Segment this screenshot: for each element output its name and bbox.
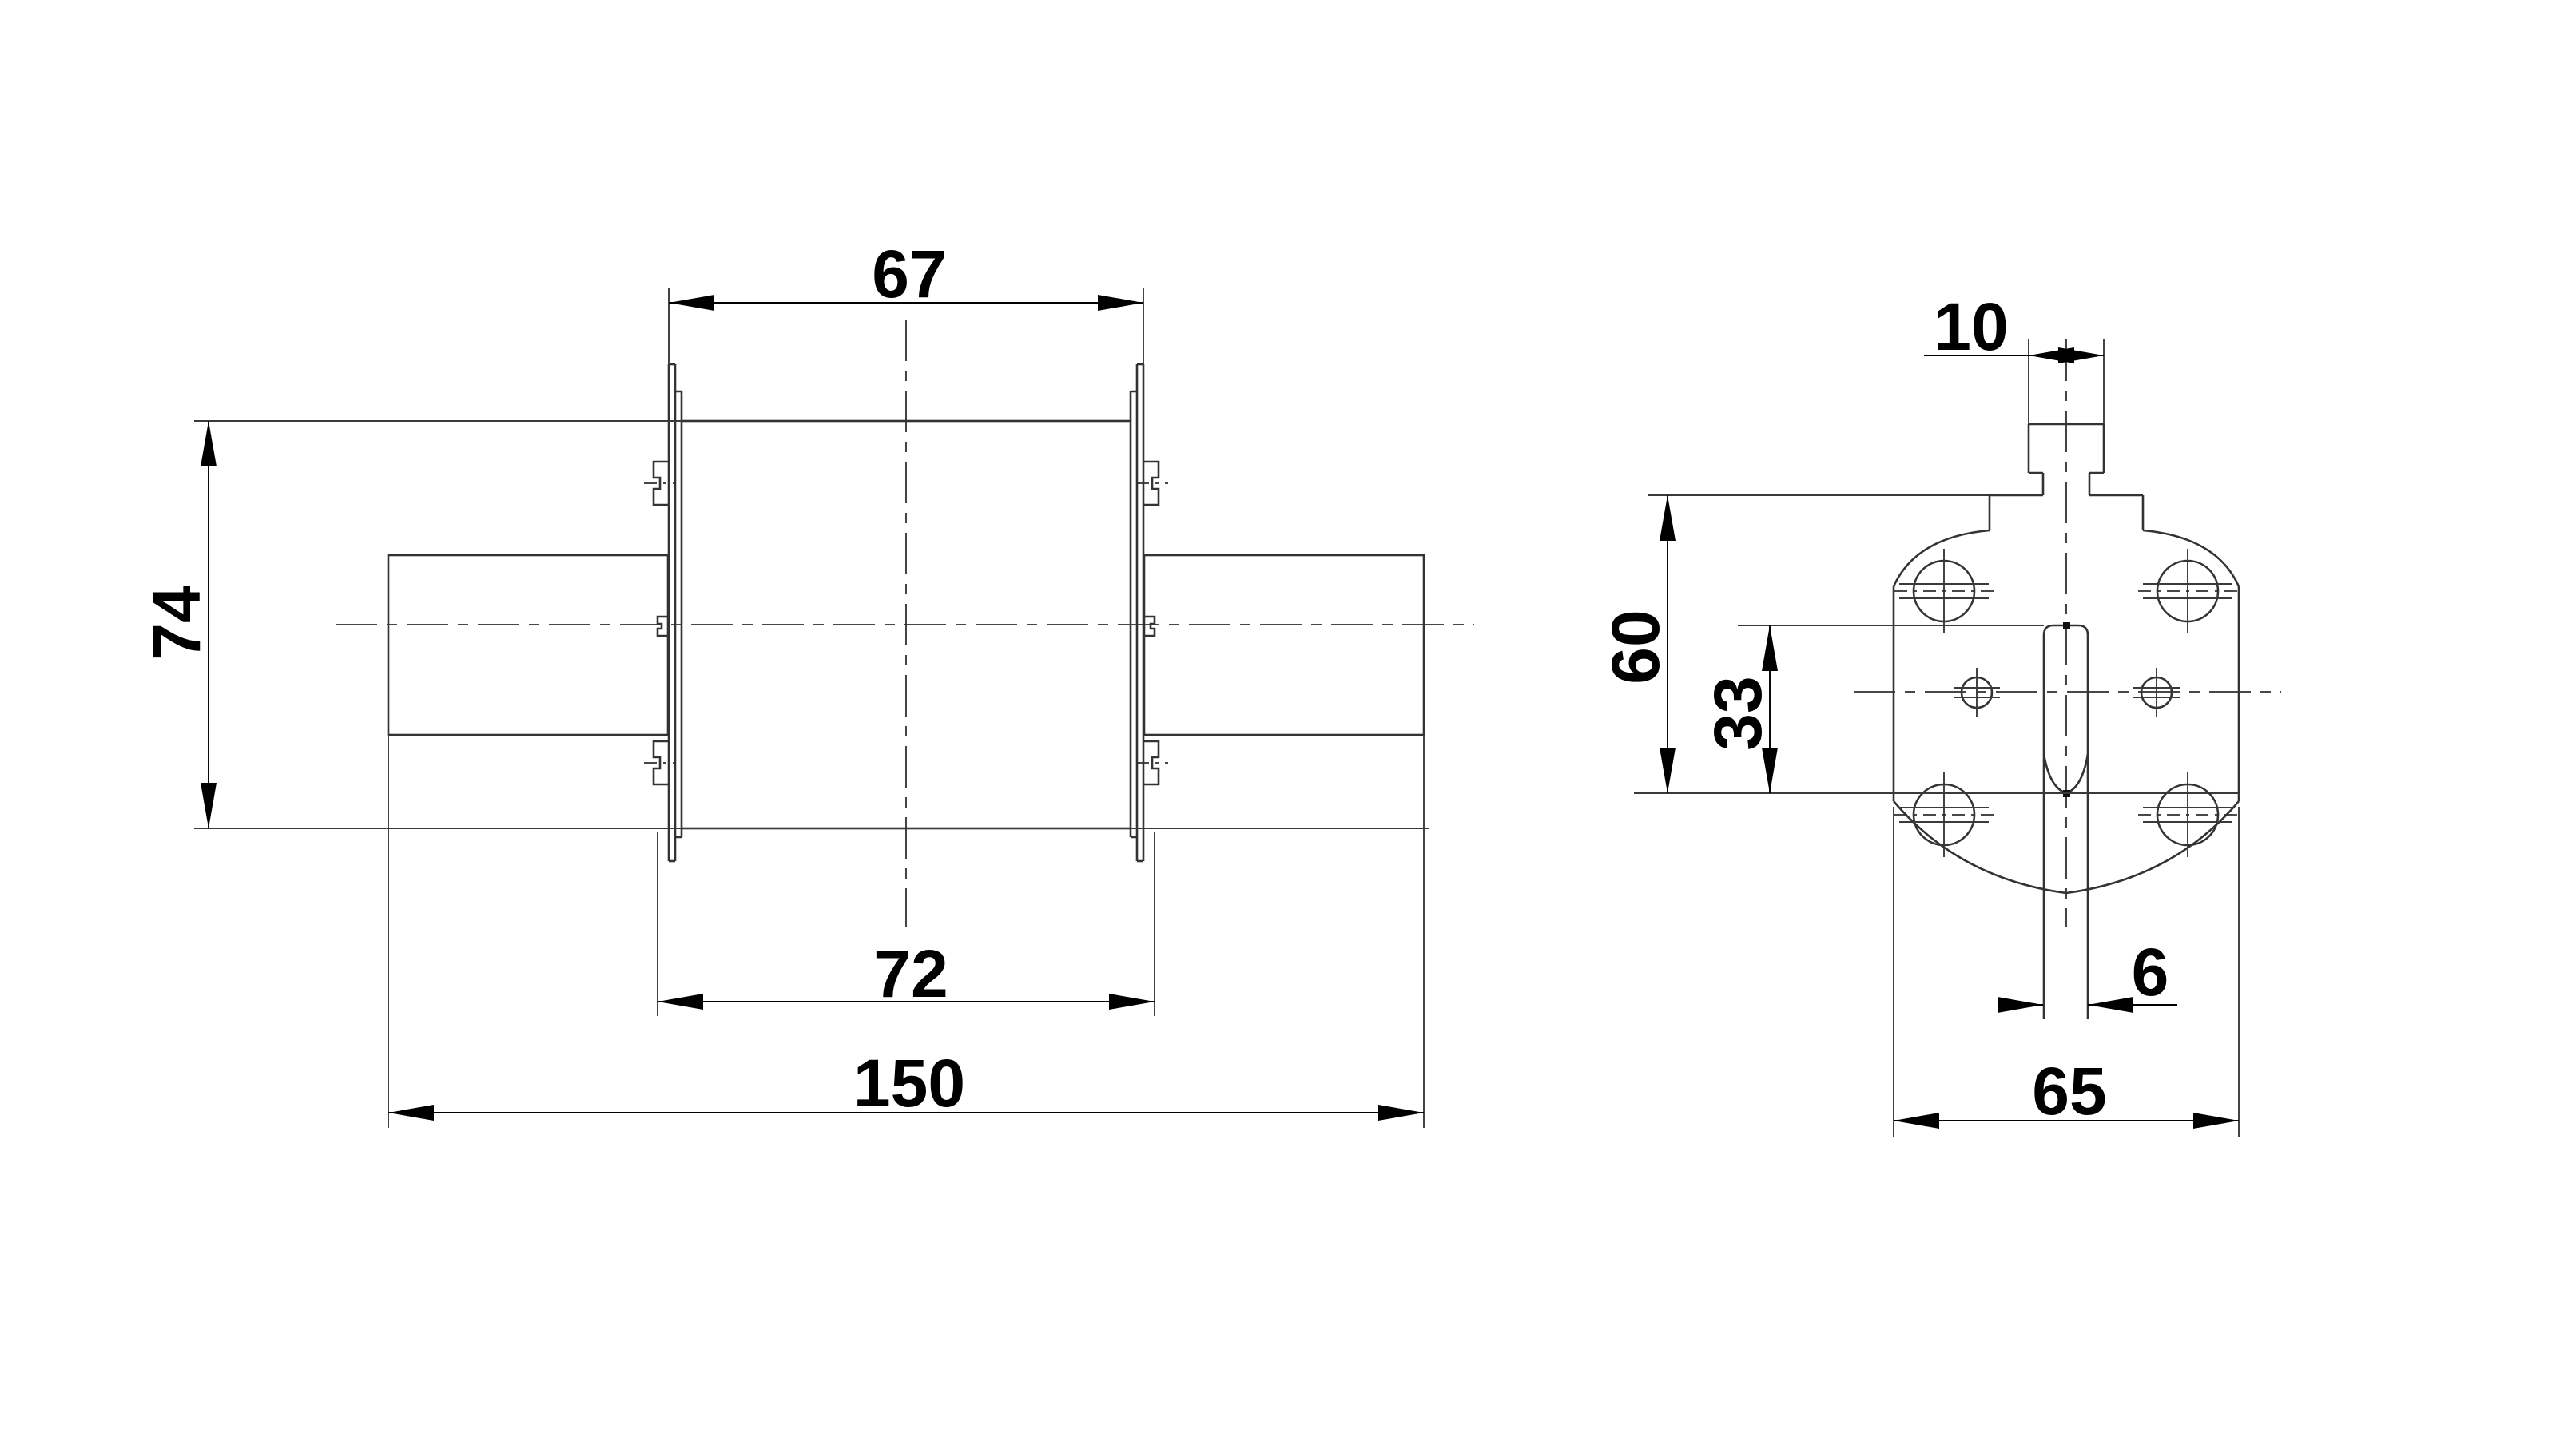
dim-67-arrow-left [669,295,714,311]
dim-74-arrow-bottom [201,783,217,828]
dim-67-arrow-right [1098,295,1143,311]
dim-65-value: 65 [2032,1054,2106,1129]
dim-74-value: 74 [139,586,214,661]
front-view [336,320,1474,927]
dim-60: 60 [1598,495,1990,793]
dim-33: 33 [1700,625,1778,793]
slot-top-junction-dot [2063,622,2070,629]
side-screw-bottom-left [1894,772,1994,857]
side-dimensions: 10 60 33 6 65 [1598,289,2239,1137]
dim-72-arrow-left [658,994,703,1010]
dim-72-value: 72 [873,936,948,1011]
front-clips-left [644,462,676,784]
front-clips-right [1136,462,1168,784]
dim-33-arrow-top [1762,625,1778,671]
dim-150-arrow-left [388,1105,434,1121]
technical-drawing-canvas: 67 74 72 150 [0,0,2576,1441]
dim-67-value: 67 [872,236,946,312]
dim-6-value: 6 [2132,935,2169,1010]
dim-74-arrow-top [201,421,217,466]
dim-150-value: 150 [853,1046,965,1121]
front-contact-tab-left [388,555,668,735]
dim-60-value: 60 [1598,609,1673,684]
dim-65-arrow-right [2193,1113,2239,1129]
dim-6-arrow-right [2088,997,2133,1013]
front-contact-tab-right [1144,555,1424,735]
dim-60-arrow-top [1660,495,1676,541]
dim-65-arrow-left [1894,1113,1939,1129]
side-screw-bottom-right [2138,772,2237,857]
dim-150: 150 [388,735,1424,1128]
dim-33-arrow-bottom [1762,748,1778,793]
dim-6-arrow-left [1998,997,2043,1013]
side-screw-small-left [1954,668,2000,717]
front-dimensions: 67 74 72 150 [139,236,1429,1128]
dim-150-arrow-right [1378,1105,1424,1121]
dim-10-arrow-right [2058,347,2104,363]
dim-10-value: 10 [1934,289,2008,364]
dim-60-arrow-bottom [1660,748,1676,793]
front-blade-left [669,364,682,861]
side-screw-small-right [2133,668,2180,717]
front-blade-right [1131,364,1143,861]
dim-72-arrow-right [1109,994,1155,1010]
dim-33-value: 33 [1700,676,1775,750]
drawing-page: 67 74 72 150 [0,0,2576,1441]
dim-10: 10 [1924,289,2104,424]
